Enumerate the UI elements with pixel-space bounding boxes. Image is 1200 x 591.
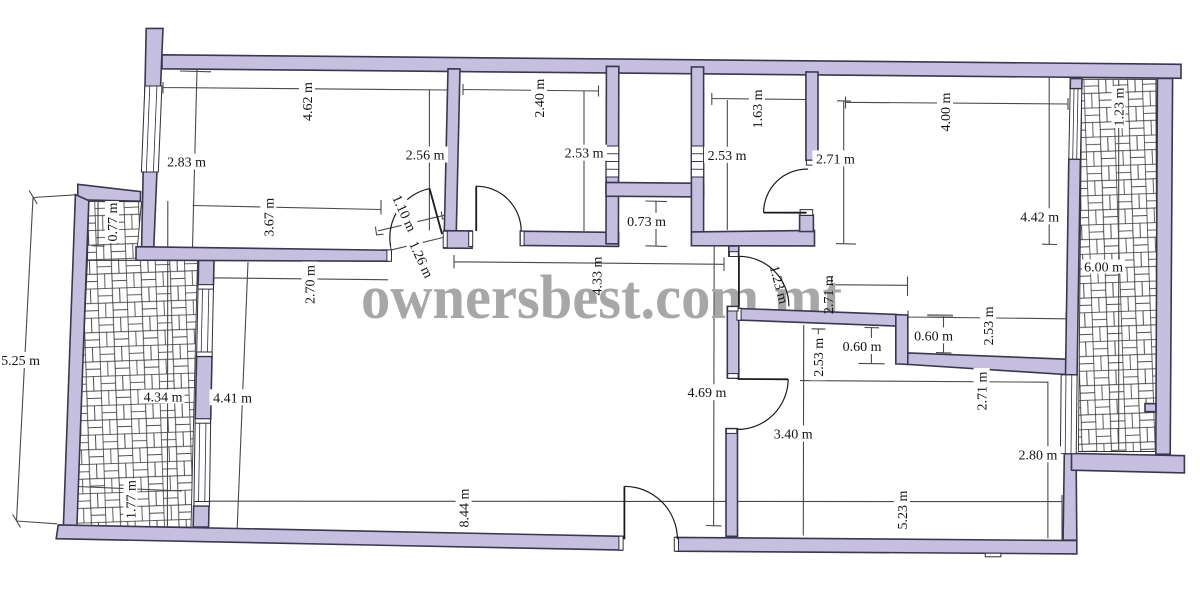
svg-text:2.53 m: 2.53 m [982, 306, 997, 345]
svg-text:0.77 m: 0.77 m [106, 202, 121, 241]
svg-text:8.44 m: 8.44 m [458, 488, 473, 527]
svg-text:2.53 m: 2.53 m [812, 338, 827, 377]
svg-text:2.53 m: 2.53 m [565, 147, 604, 162]
svg-text:2.71 m: 2.71 m [816, 152, 855, 167]
svg-text:2.80 m: 2.80 m [1018, 448, 1057, 463]
svg-text:6.00 m: 6.00 m [1084, 261, 1123, 276]
svg-text:2.83 m: 2.83 m [167, 156, 206, 171]
svg-text:2.71 m: 2.71 m [976, 371, 991, 410]
svg-text:4.33 m: 4.33 m [591, 256, 606, 295]
svg-text:5.23 m: 5.23 m [896, 490, 911, 529]
svg-text:1.63 m: 1.63 m [751, 89, 766, 128]
svg-text:1.23 m: 1.23 m [1113, 87, 1128, 126]
svg-text:2.56 m: 2.56 m [406, 149, 445, 164]
svg-text:1.77 m: 1.77 m [124, 480, 139, 519]
svg-text:0.73 m: 0.73 m [627, 215, 666, 230]
svg-text:2.71 m: 2.71 m [822, 275, 837, 314]
svg-text:2.40 m: 2.40 m [533, 79, 548, 118]
svg-text:4.69 m: 4.69 m [687, 386, 726, 401]
svg-text:2.53 m: 2.53 m [708, 149, 747, 164]
svg-text:3.40 m: 3.40 m [774, 428, 813, 443]
svg-text:4.41 m: 4.41 m [213, 391, 252, 406]
svg-text:4.62 m: 4.62 m [301, 82, 316, 121]
svg-text:4.34 m: 4.34 m [144, 391, 183, 406]
svg-text:0.60 m: 0.60 m [843, 340, 882, 355]
svg-text:3.67 m: 3.67 m [262, 198, 277, 237]
svg-text:5.25 m: 5.25 m [1, 354, 40, 369]
svg-text:0.60 m: 0.60 m [914, 329, 953, 344]
svg-text:4.00 m: 4.00 m [939, 93, 954, 132]
svg-text:4.42 m: 4.42 m [1020, 210, 1059, 225]
svg-text:2.70 m: 2.70 m [304, 265, 319, 304]
